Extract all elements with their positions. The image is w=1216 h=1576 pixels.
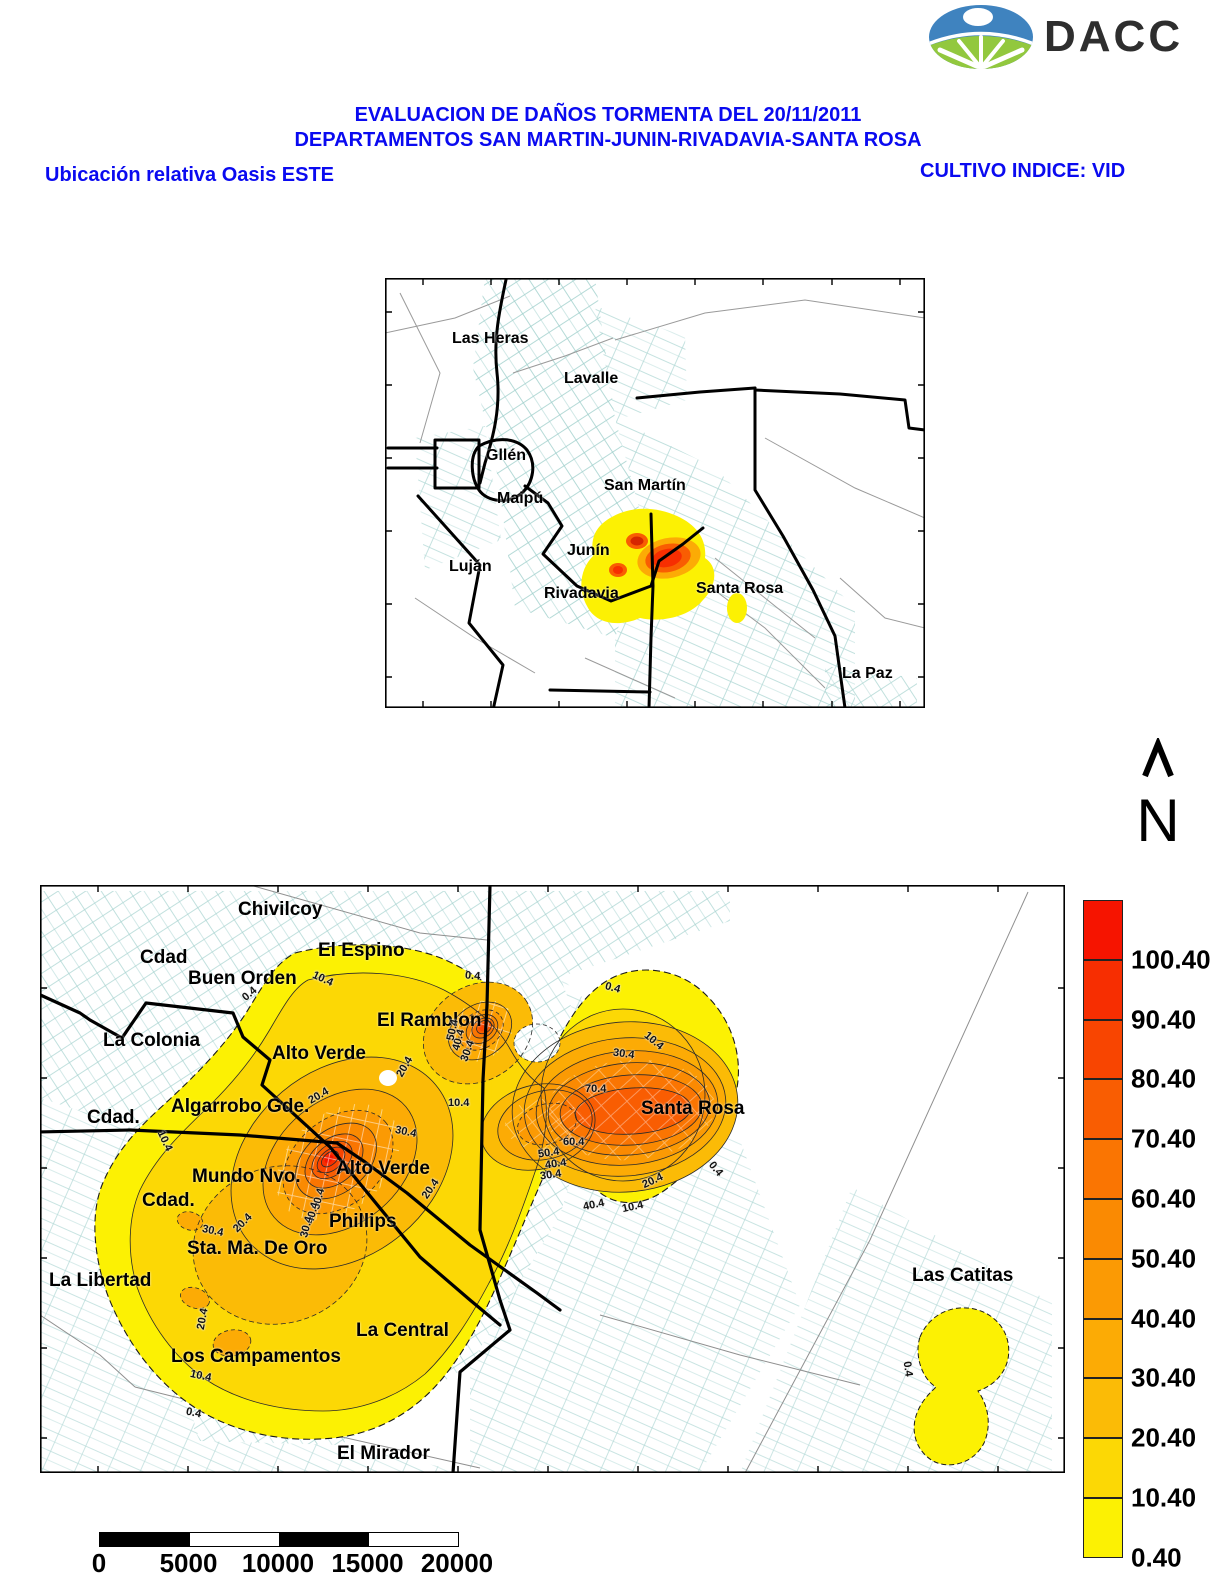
map-place-label: La Libertad xyxy=(49,1270,151,1292)
contour-value-label: 10.4 xyxy=(448,1097,469,1109)
legend-segment xyxy=(1083,1079,1123,1139)
legend-value: 70.40 xyxy=(1131,1124,1196,1155)
map-place-label: El Mirador xyxy=(337,1443,430,1465)
legend-segment xyxy=(1083,960,1123,1020)
legend-segment xyxy=(1083,1498,1123,1558)
locator-place-label: Santa Rosa xyxy=(696,580,783,598)
legend-value: 20.40 xyxy=(1131,1423,1196,1454)
map-place-label: Cdad. xyxy=(87,1107,140,1129)
legend-value: 90.40 xyxy=(1131,1004,1196,1035)
legend-value: 80.40 xyxy=(1131,1064,1196,1095)
scale-bar: 05000100001500020000 xyxy=(99,1532,459,1576)
legend-segment xyxy=(1083,900,1123,960)
dacc-logo-mark-icon xyxy=(928,4,1034,70)
locator-place-label: Rivadavia xyxy=(544,585,619,603)
page-title: EVALUACION DE DAÑOS TORMENTA DEL 20/11/2… xyxy=(0,104,1216,127)
map-place-label: Algarrobo Gde. xyxy=(171,1096,309,1118)
scale-bar-segment xyxy=(369,1533,459,1546)
page-subtitle: DEPARTAMENTOS SAN MARTIN-JUNIN-RIVADAVIA… xyxy=(0,129,1216,152)
legend-value: 10.40 xyxy=(1131,1483,1196,1514)
contour-value-label: 60.4 xyxy=(563,1136,584,1148)
legend-value: 40.40 xyxy=(1131,1303,1196,1334)
legend-colorbar: 100.4090.4080.4070.4060.4050.4040.4030.4… xyxy=(1083,900,1216,1560)
scale-bar-segment xyxy=(190,1533,280,1546)
north-indicator: N xyxy=(1118,738,1198,851)
map-place-label: La Central xyxy=(356,1320,449,1342)
legend-segment xyxy=(1083,1020,1123,1080)
legend-segment xyxy=(1083,1319,1123,1379)
locator-place-label: Las Heras xyxy=(452,330,529,348)
logo-text: DACC xyxy=(1044,15,1183,59)
map-place-label: Cdad. xyxy=(142,1190,195,1212)
legend-value: 60.40 xyxy=(1131,1184,1196,1215)
scale-bar-label: 15000 xyxy=(331,1548,403,1576)
map-place-label: Chivilcoy xyxy=(238,899,322,921)
scale-bar-label: 5000 xyxy=(160,1548,218,1576)
locator-place-label: Gllén xyxy=(486,447,526,465)
legend-value: 30.40 xyxy=(1131,1363,1196,1394)
map-place-label: Alto Verde xyxy=(336,1158,430,1180)
contour-value-label: 70.4 xyxy=(585,1083,606,1095)
damage-map: ChivilcoyCdadEl EspinoBuen OrdenLa Colon… xyxy=(40,885,1065,1473)
locator-place-label: Junín xyxy=(567,542,610,560)
scale-bar-segment xyxy=(279,1533,369,1546)
map-place-label: Los Campamentos xyxy=(171,1346,341,1368)
scale-bar-label: 20000 xyxy=(421,1548,493,1576)
scale-bar-label: 10000 xyxy=(242,1548,314,1576)
map-place-label: Alto Verde xyxy=(272,1043,366,1065)
map-place-label: La Colonia xyxy=(103,1030,200,1052)
legend-segment xyxy=(1083,1199,1123,1259)
locator-place-label: La Paz xyxy=(842,665,893,683)
legend-segment xyxy=(1083,1139,1123,1199)
north-label: N xyxy=(1118,791,1198,851)
map-place-label: El Ramblon xyxy=(377,1010,482,1032)
contour-value-label: 0.4 xyxy=(465,969,481,982)
map-place-label: Mundo Nvo. xyxy=(192,1166,301,1188)
report-page: DACC EVALUACION DE DAÑOS TORMENTA DEL 20… xyxy=(0,0,1216,1576)
locator-place-label: Luján xyxy=(449,558,492,576)
locator-place-label: San Martín xyxy=(604,477,686,495)
caption-location: Ubicación relativa Oasis ESTE xyxy=(45,164,334,187)
legend-value: 50.40 xyxy=(1131,1243,1196,1274)
legend-value: 100.40 xyxy=(1131,944,1211,975)
north-arrow-icon xyxy=(1136,738,1180,780)
locator-map: Las HerasLavalleGllénMaipúSan MartínJuní… xyxy=(385,278,925,708)
map-place-label: Cdad xyxy=(140,947,188,969)
map-place-label: Santa Rosa xyxy=(641,1098,744,1120)
map-place-label: Phillips xyxy=(329,1211,397,1233)
locator-place-label: Maipú xyxy=(497,490,543,508)
legend-segment xyxy=(1083,1378,1123,1438)
dacc-logo: DACC xyxy=(928,2,1188,72)
legend-segment xyxy=(1083,1259,1123,1319)
map-place-label: Sta. Ma. De Oro xyxy=(187,1238,327,1260)
legend-value: 0.40 xyxy=(1131,1542,1182,1573)
scale-bar-segment xyxy=(100,1533,190,1546)
scale-bar-label: 0 xyxy=(92,1548,106,1576)
locator-place-label: Lavalle xyxy=(564,370,618,388)
map-place-label: Las Catitas xyxy=(912,1265,1013,1287)
map-place-label: El Espino xyxy=(318,940,405,962)
caption-crop-index: CULTIVO INDICE: VID xyxy=(920,160,1125,183)
legend-segment xyxy=(1083,1438,1123,1498)
scale-bar-segments xyxy=(99,1532,459,1547)
map-place-label: Buen Orden xyxy=(188,968,297,990)
contour-value-label: 0.4 xyxy=(901,1361,915,1378)
